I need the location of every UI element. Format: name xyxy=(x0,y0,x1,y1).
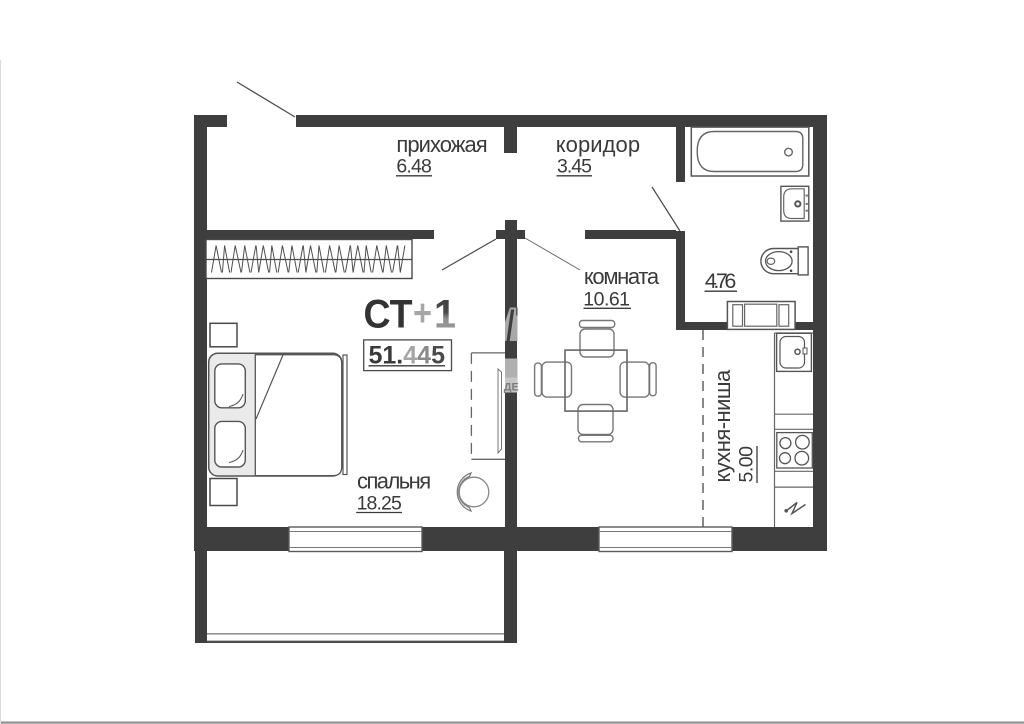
svg-text:10.61: 10.61 xyxy=(583,288,630,310)
svg-text:4.76: 4.76 xyxy=(705,269,737,293)
svg-text:ДЕ: ДЕ xyxy=(504,382,519,394)
svg-text:6.48: 6.48 xyxy=(396,156,432,178)
svg-text:СТ: СТ xyxy=(364,293,413,337)
svg-text:18.25: 18.25 xyxy=(357,493,402,515)
svg-text:кухня-ниша: кухня-ниша xyxy=(710,369,735,483)
svg-text:3.45: 3.45 xyxy=(557,156,592,178)
svg-text:спальня: спальня xyxy=(357,468,431,493)
svg-text:1: 1 xyxy=(434,293,456,337)
svg-text:коридор: коридор xyxy=(556,132,640,157)
svg-text:прихожая: прихожая xyxy=(396,132,487,157)
svg-text:комната: комната xyxy=(584,264,660,289)
svg-text:+: + xyxy=(413,293,432,334)
svg-text:5.00: 5.00 xyxy=(736,446,758,483)
